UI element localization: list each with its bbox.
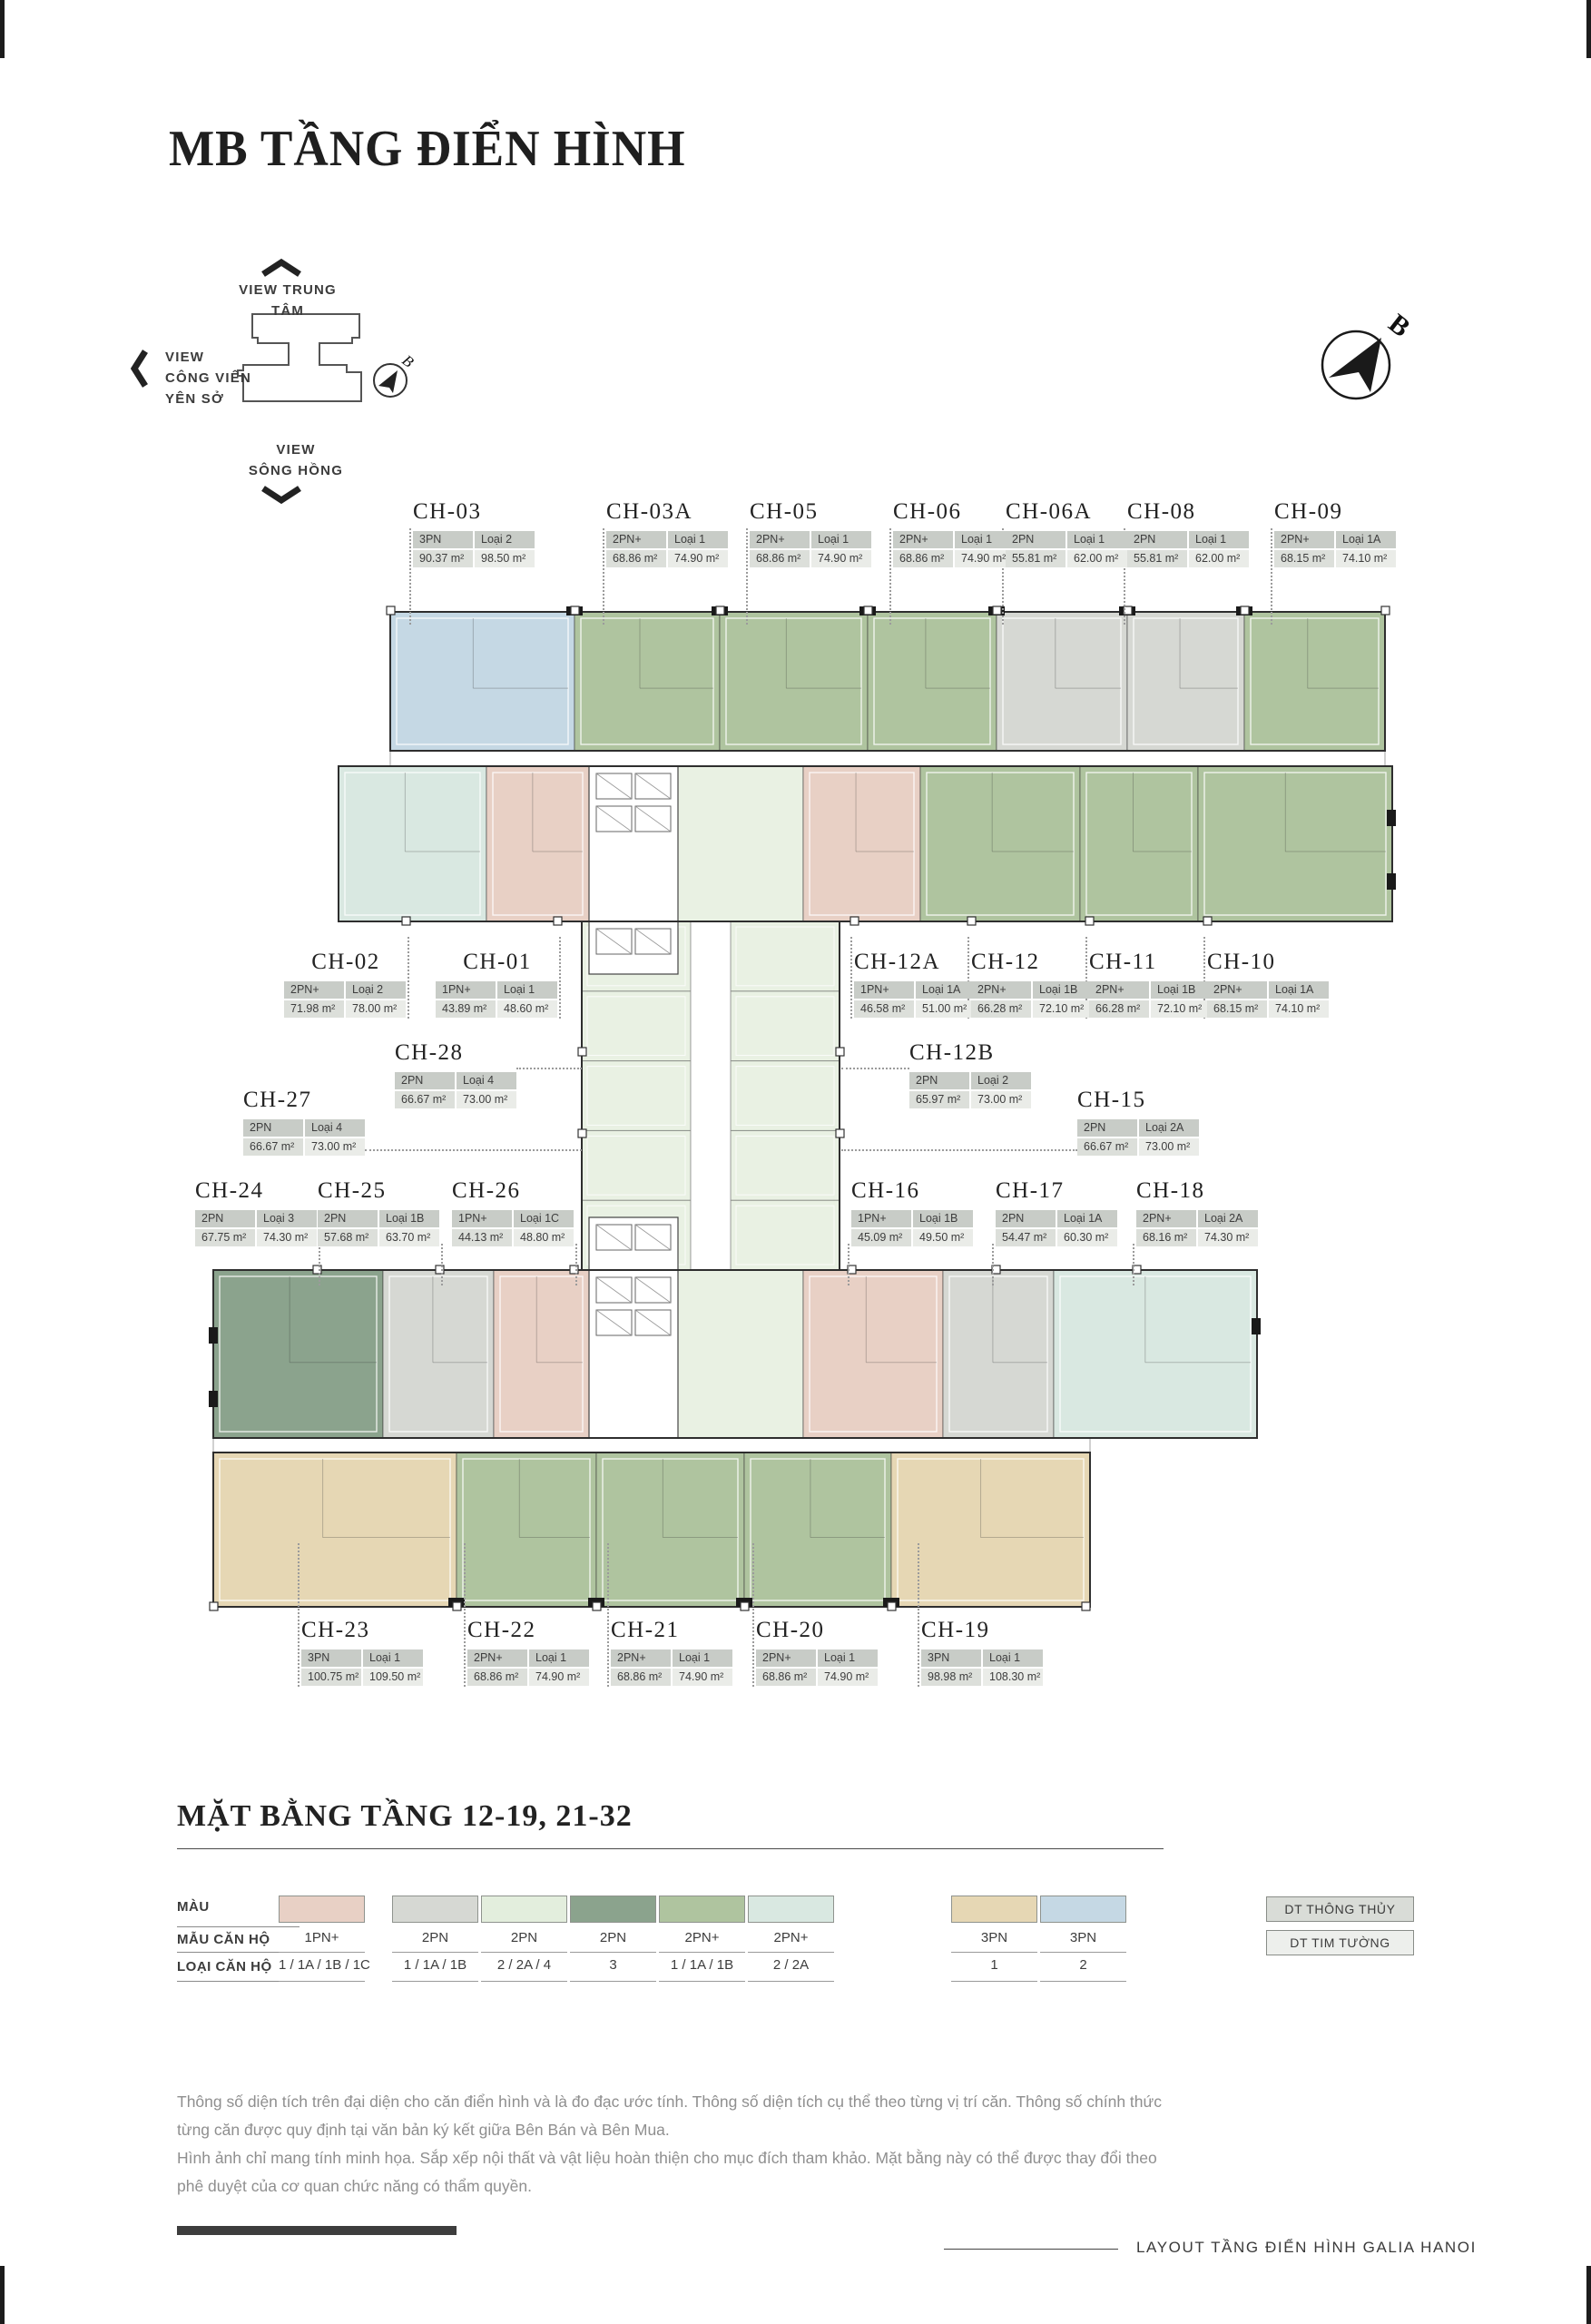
unit-a2: 73.00 m² [1139, 1138, 1199, 1156]
plan-unit-ch-22 [457, 1452, 596, 1607]
leader-line [1271, 528, 1272, 625]
unit-loai: Loại 1 [363, 1649, 423, 1667]
unit-name: CH-09 [1274, 499, 1398, 525]
legend-loai: 1 / 1A / 1B [659, 1957, 745, 1982]
plan-unit-ch-09 [1244, 612, 1385, 751]
unit-name: CH-06 [893, 499, 1016, 525]
unit-name: CH-12B [909, 1040, 1033, 1066]
unit-a2: 74.90 m² [811, 550, 871, 567]
corner-mark-bottom-right [1586, 2266, 1591, 2324]
unit-type: 2PN [1077, 1119, 1137, 1137]
unit-a2: 74.10 m² [1336, 550, 1396, 567]
unit-label-ch-03: CH-033PNLoại 290.37 m²98.50 m² [413, 499, 536, 567]
unit-type: 2PN+ [1089, 981, 1149, 999]
unit-a1: 54.47 m² [996, 1229, 1056, 1246]
footer-bar [177, 2226, 457, 2235]
unit-a2: 72.10 m² [1151, 1000, 1211, 1018]
plan-unit-ch-26 [494, 1270, 589, 1438]
unit-type: 2PN [395, 1072, 455, 1089]
unit-name: CH-17 [996, 1178, 1119, 1204]
unit-label-ch-03a: CH-03A2PN+Loại 168.86 m²74.90 m² [606, 499, 730, 567]
unit-a1: 71.98 m² [284, 1000, 344, 1018]
unit-loai: Loại 1B [1033, 981, 1093, 999]
unit-label-ch-08: CH-082PNLoại 155.81 m²62.00 m² [1127, 499, 1251, 567]
unit-loai: Loại 2 [346, 981, 406, 999]
plan-unit-ch-20 [744, 1452, 891, 1607]
plan-unit-ch-01 [486, 766, 589, 921]
unit-label-ch-02: CH-022PN+Loại 271.98 m²78.00 m² [284, 950, 408, 1018]
unit-loai: Loại 2 [971, 1072, 1031, 1089]
legend-swatch-sage [570, 1896, 656, 1923]
unit-loai: Loại 1A [1336, 531, 1396, 548]
unit-a2: 73.00 m² [457, 1091, 516, 1108]
unit-type: 3PN [921, 1649, 981, 1667]
unit-a1: 68.86 m² [467, 1669, 527, 1686]
unit-label-ch-06: CH-062PN+Loại 168.86 m²74.90 m² [893, 499, 1016, 567]
legend-swatch-blue [1040, 1896, 1126, 1923]
unit-a2: 48.80 m² [514, 1229, 574, 1246]
unit-loai: Loại 1B [379, 1210, 439, 1227]
unit-loai: Loại 1A [1057, 1210, 1117, 1227]
leader-line [752, 1543, 754, 1687]
unit-label-ch-15: CH-152PNLoại 2A66.67 m²73.00 m² [1077, 1088, 1201, 1156]
unit-name: CH-23 [301, 1618, 425, 1643]
leader-line [746, 528, 748, 625]
unit-loai: Loại 1 [811, 531, 871, 548]
unit-label-ch-19: CH-193PNLoại 198.98 m²108.30 m² [921, 1618, 1045, 1686]
plan-unit-ch-12a [803, 766, 920, 921]
unit-a1: 55.81 m² [1127, 550, 1187, 567]
legend-swatch-palegreen [481, 1896, 567, 1923]
corner-mark-top-left [0, 0, 5, 58]
unit-a1: 44.13 m² [452, 1229, 512, 1246]
unit-label-ch-21: CH-212PN+Loại 168.86 m²74.90 m² [611, 1618, 734, 1686]
unit-a1: 68.16 m² [1136, 1229, 1196, 1246]
unit-a1: 66.67 m² [1077, 1138, 1137, 1156]
leader-line [409, 528, 411, 625]
unit-type: 2PN [1127, 531, 1187, 548]
building-footprint-outline [238, 314, 361, 401]
north-label: B [1383, 309, 1416, 343]
legend-swatch-green [659, 1896, 745, 1923]
legend-mau: 2PN+ [748, 1930, 834, 1953]
chevron-down-icon [263, 488, 300, 500]
unit-label-ch-12: CH-122PN+Loại 1B66.28 m²72.10 m² [971, 950, 1095, 1018]
unit-label-ch-11: CH-112PN+Loại 1B66.28 m²72.10 m² [1089, 950, 1213, 1018]
plan-unit-ch-18 [1054, 1270, 1257, 1438]
unit-label-ch-23: CH-233PNLoại 1100.75 m²109.50 m² [301, 1618, 425, 1686]
legend-loai: 1 / 1A / 1B / 1C [279, 1957, 365, 1982]
unit-loai: Loại 1 [668, 531, 728, 548]
plan-corridor [213, 1438, 1090, 1452]
legend-mau: 2PN [570, 1930, 656, 1953]
plan-corridor [691, 921, 731, 1270]
unit-a1: 66.28 m² [971, 1000, 1031, 1018]
unit-type: 3PN [413, 531, 473, 548]
unit-type: 2PN [318, 1210, 378, 1227]
leader-line [319, 1244, 320, 1285]
chevron-left-icon [134, 351, 145, 386]
unit-a1: 67.75 m² [195, 1229, 255, 1246]
unit-name: CH-22 [467, 1618, 591, 1643]
plan-unit-ch-23 [213, 1452, 457, 1607]
leader-line [850, 937, 852, 1019]
unit-a1: 65.97 m² [909, 1091, 969, 1108]
plan-unit-ch-12 [920, 766, 1080, 921]
page-title: MB TẦNG ĐIỂN HÌNH [169, 120, 685, 178]
unit-name: CH-03A [606, 499, 730, 525]
plan-unit-ch-03a [575, 612, 720, 751]
plan-unit-ch-02 [339, 766, 486, 921]
unit-a1: 68.86 m² [893, 550, 953, 567]
unit-a2: 62.00 m² [1067, 550, 1127, 567]
view-label-bottom: VIEWSÔNG HỒNG [243, 439, 349, 481]
unit-label-ch-20: CH-202PN+Loại 168.86 m²74.90 m² [756, 1618, 879, 1686]
plan-area [678, 766, 803, 921]
leader-line [841, 1149, 1077, 1151]
leader-line [441, 1244, 443, 1285]
unit-label-ch-28: CH-282PNLoại 466.67 m²73.00 m² [395, 1040, 518, 1108]
unit-loai: Loại 2 [475, 531, 535, 548]
unit-loai: Loại 4 [457, 1072, 516, 1089]
legend-loai: 2 / 2A [748, 1957, 834, 1982]
unit-type: 2PN+ [1207, 981, 1267, 999]
unit-type: 2PN [996, 1210, 1056, 1227]
legend-swatch-tan [951, 1896, 1037, 1923]
unit-label-ch-09: CH-092PN+Loại 1A68.15 m²74.10 m² [1274, 499, 1398, 567]
legend-loai: 2 [1040, 1957, 1126, 1982]
unit-a2: 98.50 m² [475, 550, 535, 567]
legend-loai: 2 / 2A / 4 [481, 1957, 567, 1982]
section-rule [177, 1848, 1164, 1849]
leader-line [408, 937, 409, 1019]
legend-mau: 2PN [392, 1930, 478, 1953]
unit-a1: 66.67 m² [243, 1138, 303, 1156]
unit-loai: Loại 1B [1151, 981, 1211, 999]
unit-name: CH-10 [1207, 950, 1331, 975]
leader-line [992, 1244, 994, 1285]
unit-a2: 108.30 m² [983, 1669, 1043, 1686]
leader-line [607, 1543, 609, 1687]
unit-a2: 62.00 m² [1189, 550, 1249, 567]
unit-loai: Loại 2A [1139, 1119, 1199, 1137]
plan-unit-ch-11 [1080, 766, 1198, 921]
legend-swatch-teal [748, 1896, 834, 1923]
legend-mau: 2PN+ [659, 1930, 745, 1953]
leader-line [1133, 1244, 1134, 1285]
leader-line [575, 1244, 577, 1285]
corner-mark-top-right [1586, 0, 1591, 58]
legend-swatch-grey [392, 1896, 478, 1923]
unit-type: 2PN+ [750, 531, 810, 548]
unit-a2: 78.00 m² [346, 1000, 406, 1018]
unit-loai: Loại 1 [1067, 531, 1127, 548]
unit-type: 2PN+ [971, 981, 1031, 999]
unit-a1: 68.86 m² [750, 550, 810, 567]
unit-name: CH-20 [756, 1618, 879, 1643]
unit-name: CH-12 [971, 950, 1095, 975]
unit-name: CH-03 [413, 499, 536, 525]
unit-type: 2PN+ [611, 1649, 671, 1667]
unit-type: 2PN [1006, 531, 1066, 548]
unit-a2: 73.00 m² [971, 1091, 1031, 1108]
plan-area [678, 1270, 803, 1438]
unit-type: 2PN+ [467, 1649, 527, 1667]
credit-text: LAYOUT TẦNG ĐIỂN HÌNH GALIA HANOI [1136, 2239, 1477, 2257]
unit-name: CH-21 [611, 1618, 734, 1643]
unit-loai: Loại 1C [514, 1210, 574, 1227]
unit-name: CH-06A [1006, 499, 1129, 525]
leader-line [848, 1244, 850, 1285]
unit-name: CH-25 [318, 1178, 441, 1204]
unit-name: CH-11 [1089, 950, 1213, 975]
unit-a2: 49.50 m² [913, 1229, 973, 1246]
unit-a2: 74.90 m² [673, 1669, 732, 1686]
unit-type: 2PN+ [284, 981, 344, 999]
unit-a2: 48.60 m² [497, 1000, 557, 1018]
unit-a2: 72.10 m² [1033, 1000, 1093, 1018]
chevron-up-icon [263, 262, 300, 274]
unit-label-ch-27: CH-272PNLoại 466.67 m²73.00 m² [243, 1088, 367, 1156]
unit-label-ch-17: CH-172PNLoại 1A54.47 m²60.30 m² [996, 1178, 1119, 1246]
unit-name: CH-01 [436, 950, 559, 975]
unit-name: CH-15 [1077, 1088, 1201, 1113]
legend-swatch-pink [279, 1896, 365, 1923]
unit-a1: 57.68 m² [318, 1229, 378, 1246]
unit-a1: 66.28 m² [1089, 1000, 1149, 1018]
unit-type: 1PN+ [851, 1210, 911, 1227]
view-label-left: VIEWCÔNG VIÊNYÊN SỞ [165, 347, 251, 409]
legend-mau: 3PN [951, 1930, 1037, 1953]
leader-line [559, 937, 561, 1019]
unit-loai: Loại 1A [1269, 981, 1329, 999]
unit-loai: Loại 1 [983, 1649, 1043, 1667]
unit-a1: 68.15 m² [1274, 550, 1334, 567]
legend-mau: 1PN+ [279, 1930, 365, 1953]
plan-unit-ch-17 [943, 1270, 1054, 1438]
unit-a2: 73.00 m² [305, 1138, 365, 1156]
legend-mau: 2PN [481, 1930, 567, 1953]
unit-a2: 51.00 m² [916, 1000, 976, 1018]
north-compass-icon: B [1307, 300, 1434, 427]
dt-thong-thuy-box: DT THÔNG THỦY [1266, 1896, 1414, 1922]
unit-type: 2PN [909, 1072, 969, 1089]
floor-plan-drawing [209, 601, 1416, 1613]
leader-line [298, 1543, 300, 1687]
unit-a1: 68.86 m² [756, 1669, 816, 1686]
unit-type: 2PN [195, 1210, 255, 1227]
unit-a2: 74.30 m² [1198, 1229, 1258, 1246]
unit-loai: Loại 3 [257, 1210, 317, 1227]
unit-label-ch-12b: CH-12B2PNLoại 265.97 m²73.00 m² [909, 1040, 1033, 1108]
unit-a2: 74.10 m² [1269, 1000, 1329, 1018]
unit-type: 1PN+ [452, 1210, 512, 1227]
leader-line [841, 1068, 909, 1069]
unit-a2: 109.50 m² [363, 1669, 423, 1686]
leader-line [918, 1543, 919, 1687]
plan-corridor [390, 751, 1385, 766]
credit-rule [944, 2249, 1118, 2250]
corner-mark-bottom-left [0, 2266, 5, 2324]
unit-name: CH-26 [452, 1178, 575, 1204]
unit-a1: 98.98 m² [921, 1669, 981, 1686]
unit-name: CH-12A [854, 950, 977, 975]
unit-a2: 74.90 m² [529, 1669, 589, 1686]
unit-name: CH-02 [284, 950, 408, 975]
unit-loai: Loại 4 [305, 1119, 365, 1137]
legend-mau: 3PN [1040, 1930, 1126, 1953]
section-title: MẶT BẰNG TẦNG 12-19, 21-32 [177, 1799, 633, 1834]
unit-type: 3PN [301, 1649, 361, 1667]
unit-a1: 68.15 m² [1207, 1000, 1267, 1018]
plan-unit-ch-06 [868, 612, 997, 751]
unit-name: CH-16 [851, 1178, 975, 1204]
plan-unit-ch-05 [720, 612, 868, 751]
unit-label-ch-12a: CH-12A1PN+Loại 1A46.58 m²51.00 m² [854, 950, 977, 1018]
floor-plan-poster: MB TẦNG ĐIỂN HÌNH B VIEW TRUNG TÂM VIEWC… [0, 0, 1591, 2324]
unit-label-ch-25: CH-252PNLoại 1B57.68 m²63.70 m² [318, 1178, 441, 1246]
unit-label-ch-05: CH-052PN+Loại 168.86 m²74.90 m² [750, 499, 873, 567]
unit-name: CH-27 [243, 1088, 367, 1113]
unit-a2: 74.90 m² [818, 1669, 878, 1686]
plan-unit-ch-03 [390, 612, 575, 751]
unit-a1: 100.75 m² [301, 1669, 361, 1686]
plan-unit-ch-21 [596, 1452, 744, 1607]
plan-unit-ch-16 [803, 1270, 943, 1438]
unit-label-ch-01: CH-011PN+Loại 143.89 m²48.60 m² [436, 950, 559, 1018]
unit-type: 2PN+ [1136, 1210, 1196, 1227]
unit-type: 1PN+ [436, 981, 496, 999]
unit-type: 2PN+ [756, 1649, 816, 1667]
unit-label-ch-18: CH-182PN+Loại 2A68.16 m²74.30 m² [1136, 1178, 1260, 1246]
unit-a1: 43.89 m² [436, 1000, 496, 1018]
leader-line [516, 1068, 582, 1069]
unit-a1: 66.67 m² [395, 1091, 455, 1108]
unit-type: 2PN+ [1274, 531, 1334, 548]
unit-a1: 55.81 m² [1006, 550, 1066, 567]
unit-label-ch-10: CH-102PN+Loại 1A68.15 m²74.10 m² [1207, 950, 1331, 1018]
leader-line [889, 528, 891, 625]
unit-name: CH-08 [1127, 499, 1251, 525]
unit-type: 2PN [243, 1119, 303, 1137]
dt-tim-tuong-box: DT TIM TƯỜNG [1266, 1930, 1414, 1955]
unit-name: CH-19 [921, 1618, 1045, 1643]
legend-loai: 1 [951, 1957, 1037, 1982]
unit-loai: Loại 1 [529, 1649, 589, 1667]
unit-a2: 74.30 m² [257, 1229, 317, 1246]
leader-line [365, 1149, 582, 1151]
legend-loai: 3 [570, 1957, 656, 1982]
plan-unit-ch-10 [1198, 766, 1392, 921]
plan-unit-ch-06a [997, 612, 1127, 751]
unit-label-ch-24: CH-242PNLoại 367.75 m²74.30 m² [195, 1178, 319, 1246]
unit-loai: Loại 1B [913, 1210, 973, 1227]
unit-a2: 63.70 m² [379, 1229, 439, 1246]
unit-label-ch-06a: CH-06A2PNLoại 155.81 m²62.00 m² [1006, 499, 1129, 567]
leader-line [464, 1543, 466, 1687]
leader-line [603, 528, 604, 625]
unit-a1: 68.86 m² [611, 1669, 671, 1686]
unit-type: 2PN+ [606, 531, 666, 548]
unit-label-ch-26: CH-261PN+Loại 1C44.13 m²48.80 m² [452, 1178, 575, 1246]
unit-a2: 74.90 m² [668, 550, 728, 567]
unit-name: CH-18 [1136, 1178, 1260, 1204]
unit-name: CH-28 [395, 1040, 518, 1066]
plan-unit-ch-19 [891, 1452, 1090, 1607]
unit-label-ch-22: CH-222PN+Loại 168.86 m²74.90 m² [467, 1618, 591, 1686]
unit-loai: Loại 1 [1189, 531, 1249, 548]
unit-a1: 68.86 m² [606, 550, 666, 567]
unit-label-ch-16: CH-161PN+Loại 1B45.09 m²49.50 m² [851, 1178, 975, 1246]
unit-a1: 46.58 m² [854, 1000, 914, 1018]
unit-type: 2PN+ [893, 531, 953, 548]
unit-name: CH-05 [750, 499, 873, 525]
plan-unit-ch-25 [383, 1270, 494, 1438]
unit-a2: 60.30 m² [1057, 1229, 1117, 1246]
plan-unit-ch-24 [213, 1270, 383, 1438]
unit-a1: 90.37 m² [413, 550, 473, 567]
unit-loai: Loại 1 [818, 1649, 878, 1667]
disclaimer-text: Thông số diện tích trên đại diện cho căn… [177, 2088, 1502, 2201]
unit-loai: Loại 1A [916, 981, 976, 999]
unit-loai: Loại 1 [673, 1649, 732, 1667]
plan-unit-ch-08 [1127, 612, 1244, 751]
unit-loai: Loại 2A [1198, 1210, 1258, 1227]
unit-type: 1PN+ [854, 981, 914, 999]
unit-a1: 45.09 m² [851, 1229, 911, 1246]
unit-name: CH-24 [195, 1178, 319, 1204]
unit-loai: Loại 1 [497, 981, 557, 999]
view-label-top: VIEW TRUNG TÂM [238, 280, 338, 321]
legend-loai: 1 / 1A / 1B [392, 1957, 478, 1982]
